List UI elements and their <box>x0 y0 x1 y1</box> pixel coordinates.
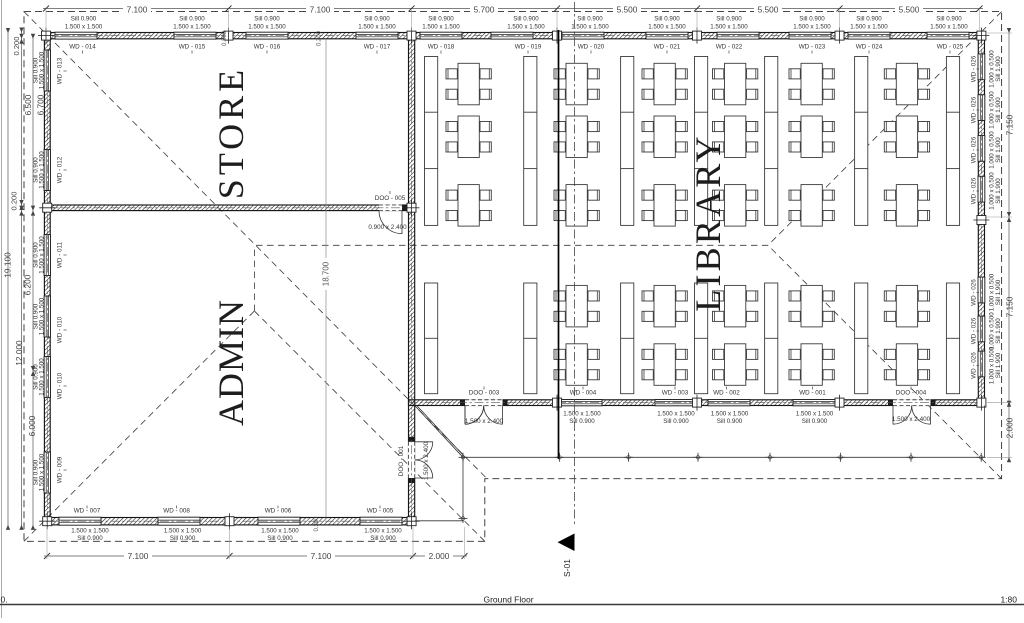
svg-text:WD - 018: WD - 018 <box>428 44 455 51</box>
svg-text:Sill 1.900: Sill 1.900 <box>995 178 1002 204</box>
svg-text:2.000: 2.000 <box>1005 417 1015 438</box>
svg-text:5.700: 5.700 <box>474 5 495 15</box>
svg-text:WD - 026: WD - 026 <box>971 96 978 123</box>
svg-text:1.500 x 1.500: 1.500 x 1.500 <box>261 528 299 535</box>
svg-text:Sill 0.900: Sill 0.900 <box>170 535 196 542</box>
svg-text:Sill 0.900: Sill 0.900 <box>569 418 595 425</box>
svg-text:1.500 x 1.500: 1.500 x 1.500 <box>710 23 748 30</box>
svg-text:WD - 026: WD - 026 <box>971 55 978 82</box>
svg-text:1.500 x 1.500: 1.500 x 1.500 <box>648 23 686 30</box>
svg-text:WD - 003: WD - 003 <box>662 390 689 397</box>
svg-text:1:80: 1:80 <box>1000 595 1017 605</box>
svg-text:6.200: 6.200 <box>23 274 33 295</box>
svg-text:1.500 x 1.500: 1.500 x 1.500 <box>39 151 46 189</box>
svg-text:1.500 x 1.500: 1.500 x 1.500 <box>39 51 46 89</box>
svg-text:Sill 1.900: Sill 1.900 <box>995 318 1002 344</box>
svg-text:WD - 002: WD - 002 <box>713 390 740 397</box>
svg-text:WD - 010: WD - 010 <box>57 316 64 343</box>
svg-text:18.700: 18.700 <box>322 261 331 286</box>
svg-text:Sill 0.900: Sill 0.900 <box>716 15 742 22</box>
svg-text:Sill 1.900: Sill 1.900 <box>995 137 1002 163</box>
svg-text:5.500: 5.500 <box>617 5 638 15</box>
svg-text:1.500 x 1.500: 1.500 x 1.500 <box>930 23 968 30</box>
svg-text:1.500 x 1.500: 1.500 x 1.500 <box>248 23 286 30</box>
svg-text:5.500: 5.500 <box>758 5 779 15</box>
svg-text:WD - 012: WD - 012 <box>57 156 64 183</box>
svg-text:1.500 x 2.400: 1.500 x 2.400 <box>892 416 931 423</box>
svg-text:1.500 x 2.400: 1.500 x 2.400 <box>465 418 504 425</box>
svg-text:Sill 0.900: Sill 0.900 <box>799 15 825 22</box>
svg-text:1.500 x 1.500: 1.500 x 1.500 <box>711 411 749 418</box>
svg-text:Sill 0.900: Sill 0.900 <box>71 15 97 22</box>
svg-text:Sill 0.900: Sill 0.900 <box>856 15 882 22</box>
svg-text:7.100: 7.100 <box>310 5 331 15</box>
svg-text:WD - 025: WD - 025 <box>937 44 964 51</box>
svg-text:DOO - 001: DOO - 001 <box>398 445 405 476</box>
svg-text:WD - 004: WD - 004 <box>570 390 597 397</box>
svg-text:0.200: 0.200 <box>317 30 323 46</box>
svg-text:6.500: 6.500 <box>23 94 33 115</box>
svg-text:DOO - 003: DOO - 003 <box>469 390 500 397</box>
svg-text:Sill 0.900: Sill 0.900 <box>936 15 962 22</box>
svg-text:0.200: 0.200 <box>314 516 320 532</box>
svg-text:Sill 0.900: Sill 0.900 <box>179 15 205 22</box>
svg-text:7.100: 7.100 <box>311 551 332 561</box>
svg-text:Ground Floor: Ground Floor <box>483 595 533 605</box>
svg-text:STORE: STORE <box>211 66 251 199</box>
svg-text:1.500 x 1.500: 1.500 x 1.500 <box>358 23 396 30</box>
svg-text:WD - 016: WD - 016 <box>254 44 281 51</box>
svg-text:Sill 0.900: Sill 0.900 <box>513 15 539 22</box>
svg-text:WD - 015: WD - 015 <box>179 44 206 51</box>
svg-text:Sill 0.900: Sill 0.900 <box>370 535 396 542</box>
svg-text:Sill 0.900: Sill 0.900 <box>254 15 280 22</box>
svg-text:0.: 0. <box>1 595 8 605</box>
svg-text:12.000: 12.000 <box>14 340 24 366</box>
svg-text:0.200: 0.200 <box>12 36 21 55</box>
svg-text:WD - 010: WD - 010 <box>57 372 64 399</box>
svg-text:1.500 x 1.500: 1.500 x 1.500 <box>793 23 831 30</box>
svg-text:WD - 006: WD - 006 <box>265 508 292 515</box>
svg-text:2.000: 2.000 <box>429 551 450 561</box>
svg-text:WD - 024: WD - 024 <box>856 44 883 51</box>
svg-text:Sill 0.900: Sill 0.900 <box>663 418 689 425</box>
svg-text:WD - 001: WD - 001 <box>799 390 826 397</box>
svg-text:Sill 0.900: Sill 0.900 <box>364 15 390 22</box>
svg-text:6.700: 6.700 <box>36 94 46 115</box>
svg-text:WD - 022: WD - 022 <box>716 44 743 51</box>
svg-text:WD - 019: WD - 019 <box>515 44 542 51</box>
svg-text:Sill 0.900: Sill 0.900 <box>577 15 603 22</box>
svg-text:WD - 026: WD - 026 <box>971 177 978 204</box>
svg-text:ADMIN: ADMIN <box>211 299 251 426</box>
svg-text:WD - 009: WD - 009 <box>57 456 64 483</box>
svg-text:7.100: 7.100 <box>128 551 149 561</box>
svg-text:WD - 007: WD - 007 <box>74 508 101 515</box>
svg-text:LIBRARY: LIBRARY <box>688 133 728 311</box>
svg-text:WD - 026: WD - 026 <box>971 279 978 306</box>
svg-text:WD - 026: WD - 026 <box>971 352 978 379</box>
svg-text:WD - 008: WD - 008 <box>163 508 190 515</box>
svg-text:WD - 023: WD - 023 <box>799 44 826 51</box>
svg-text:1.500 x 1.500: 1.500 x 1.500 <box>422 23 460 30</box>
svg-text:1.500 x 1.500: 1.500 x 1.500 <box>65 23 103 30</box>
svg-text:1.500 x 1.500: 1.500 x 1.500 <box>39 358 46 396</box>
svg-text:0.900 x 2.400: 0.900 x 2.400 <box>368 224 407 231</box>
svg-text:1.500 x 1.500: 1.500 x 1.500 <box>39 297 46 335</box>
svg-text:19.100: 19.100 <box>3 252 13 278</box>
svg-text:5.500: 5.500 <box>899 5 920 15</box>
svg-text:1.500 x 1.500: 1.500 x 1.500 <box>71 528 109 535</box>
svg-text:Sill 0.900: Sill 0.900 <box>428 15 454 22</box>
svg-text:7.150: 7.150 <box>1005 114 1015 135</box>
svg-text:S-01: S-01 <box>562 559 572 577</box>
svg-text:WD - 005: WD - 005 <box>367 508 394 515</box>
svg-text:Sill 1.900: Sill 1.900 <box>995 279 1002 305</box>
svg-text:WD - 026: WD - 026 <box>971 136 978 163</box>
svg-text:7.100: 7.100 <box>127 5 148 15</box>
svg-text:0.200: 0.200 <box>222 30 228 46</box>
svg-text:1.500 x 1.500: 1.500 x 1.500 <box>39 453 46 491</box>
svg-text:1.500 x 1.500: 1.500 x 1.500 <box>364 528 402 535</box>
svg-text:1.500 x 2.400: 1.500 x 2.400 <box>423 441 430 480</box>
svg-text:Sill 0.900: Sill 0.900 <box>654 15 680 22</box>
svg-text:1.500 x 1.500: 1.500 x 1.500 <box>164 528 202 535</box>
svg-text:Sill 0.900: Sill 0.900 <box>267 535 293 542</box>
svg-text:1.500 x 1.500: 1.500 x 1.500 <box>657 411 695 418</box>
svg-text:1.500 x 1.500: 1.500 x 1.500 <box>507 23 545 30</box>
svg-text:Sill 1.900: Sill 1.900 <box>995 352 1002 378</box>
svg-text:WD - 020: WD - 020 <box>578 44 605 51</box>
svg-text:6.000: 6.000 <box>27 415 37 436</box>
svg-text:0.200: 0.200 <box>10 191 19 210</box>
svg-text:1.500 x 1.500: 1.500 x 1.500 <box>39 236 46 274</box>
svg-text:1.500 x 1.500: 1.500 x 1.500 <box>796 411 834 418</box>
svg-text:1.500 x 1.500: 1.500 x 1.500 <box>563 411 601 418</box>
svg-text:Sill 0.900: Sill 0.900 <box>717 418 743 425</box>
svg-text:DOO - 004: DOO - 004 <box>896 390 927 397</box>
svg-text:DOO - 005: DOO - 005 <box>375 195 406 202</box>
svg-text:WD - 021: WD - 021 <box>654 44 681 51</box>
svg-text:1.500 x 1.500: 1.500 x 1.500 <box>850 23 888 30</box>
svg-text:1.500 x 1.500: 1.500 x 1.500 <box>173 23 211 30</box>
svg-text:Sill 1.900: Sill 1.900 <box>995 56 1002 82</box>
svg-text:Sill 0.900: Sill 0.900 <box>802 418 828 425</box>
svg-text:Sill 0.900: Sill 0.900 <box>77 535 103 542</box>
svg-text:1.500 x 1.500: 1.500 x 1.500 <box>571 23 609 30</box>
svg-text:WD - 017: WD - 017 <box>364 44 391 51</box>
svg-text:WD - 013: WD - 013 <box>57 57 64 84</box>
svg-text:7.150: 7.150 <box>1005 296 1015 317</box>
svg-text:WD - 011: WD - 011 <box>57 241 64 268</box>
svg-text:Sill 1.900: Sill 1.900 <box>995 97 1002 123</box>
svg-text:WD - 014: WD - 014 <box>69 44 96 51</box>
svg-text:WD - 026: WD - 026 <box>971 317 978 344</box>
